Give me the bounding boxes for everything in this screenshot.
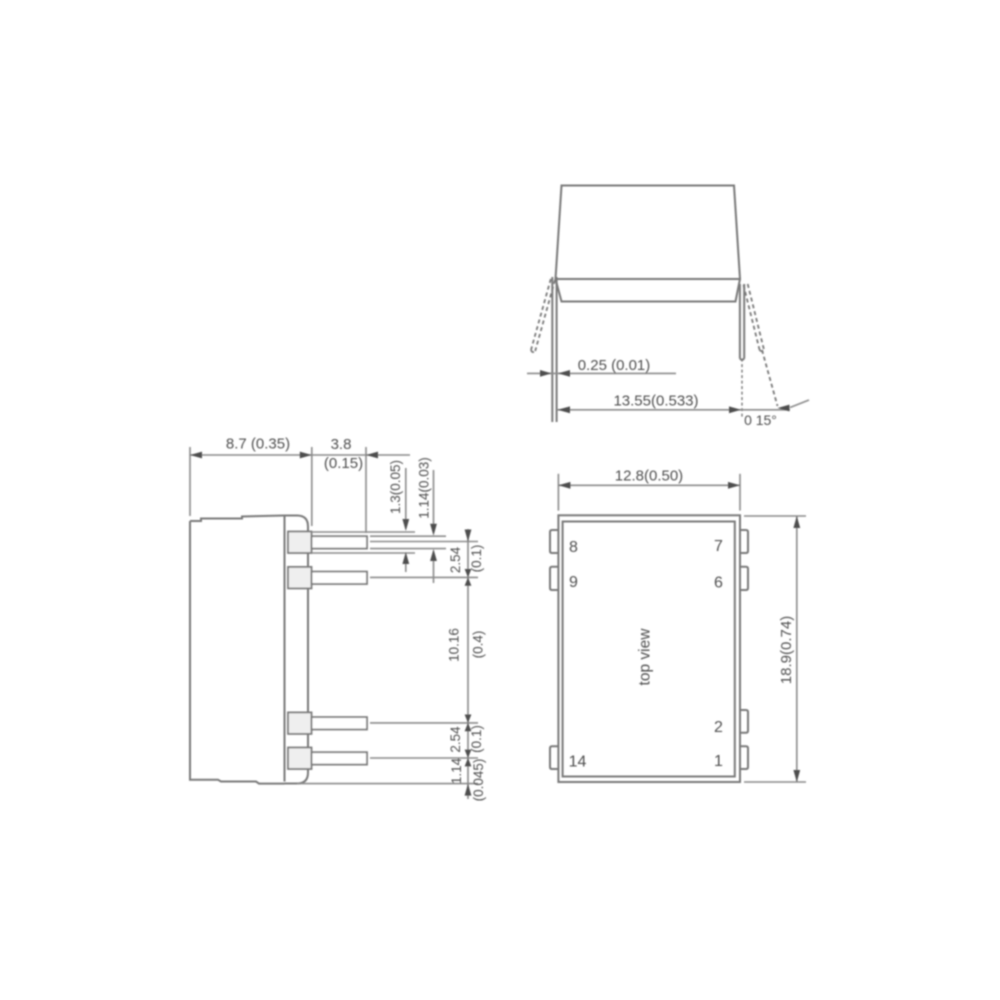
svg-text:3.8: 3.8 bbox=[331, 436, 352, 453]
svg-text:6: 6 bbox=[714, 575, 723, 592]
svg-text:1: 1 bbox=[714, 753, 723, 770]
svg-text:1.14: 1.14 bbox=[449, 757, 464, 784]
svg-text:(0.15): (0.15) bbox=[324, 455, 363, 472]
svg-text:1.3(0.05): 1.3(0.05) bbox=[388, 460, 403, 514]
svg-text:12.8(0.50): 12.8(0.50) bbox=[615, 468, 683, 485]
svg-text:(0.1): (0.1) bbox=[469, 725, 484, 753]
svg-text:0 15°: 0 15° bbox=[744, 412, 777, 428]
svg-text:2.54: 2.54 bbox=[448, 546, 463, 573]
svg-text:2: 2 bbox=[714, 719, 723, 736]
svg-text:top view: top view bbox=[637, 628, 654, 686]
svg-text:10.16: 10.16 bbox=[447, 628, 462, 662]
svg-text:9: 9 bbox=[569, 574, 578, 591]
svg-text:0.25 (0.01): 0.25 (0.01) bbox=[578, 357, 651, 374]
svg-text:(0.1): (0.1) bbox=[469, 545, 484, 573]
svg-text:8: 8 bbox=[569, 539, 578, 556]
svg-text:14: 14 bbox=[569, 754, 587, 771]
svg-text:13.55(0.533): 13.55(0.533) bbox=[613, 393, 698, 410]
svg-text:18.9(0.74): 18.9(0.74) bbox=[778, 616, 795, 684]
svg-text:2.54: 2.54 bbox=[448, 726, 463, 753]
svg-text:(0.4): (0.4) bbox=[471, 631, 486, 659]
svg-text:7: 7 bbox=[714, 538, 723, 555]
svg-text:(0.045): (0.045) bbox=[471, 759, 486, 802]
svg-text:1.14(0.03): 1.14(0.03) bbox=[417, 457, 432, 519]
svg-text:8.7 (0.35): 8.7 (0.35) bbox=[226, 436, 290, 453]
